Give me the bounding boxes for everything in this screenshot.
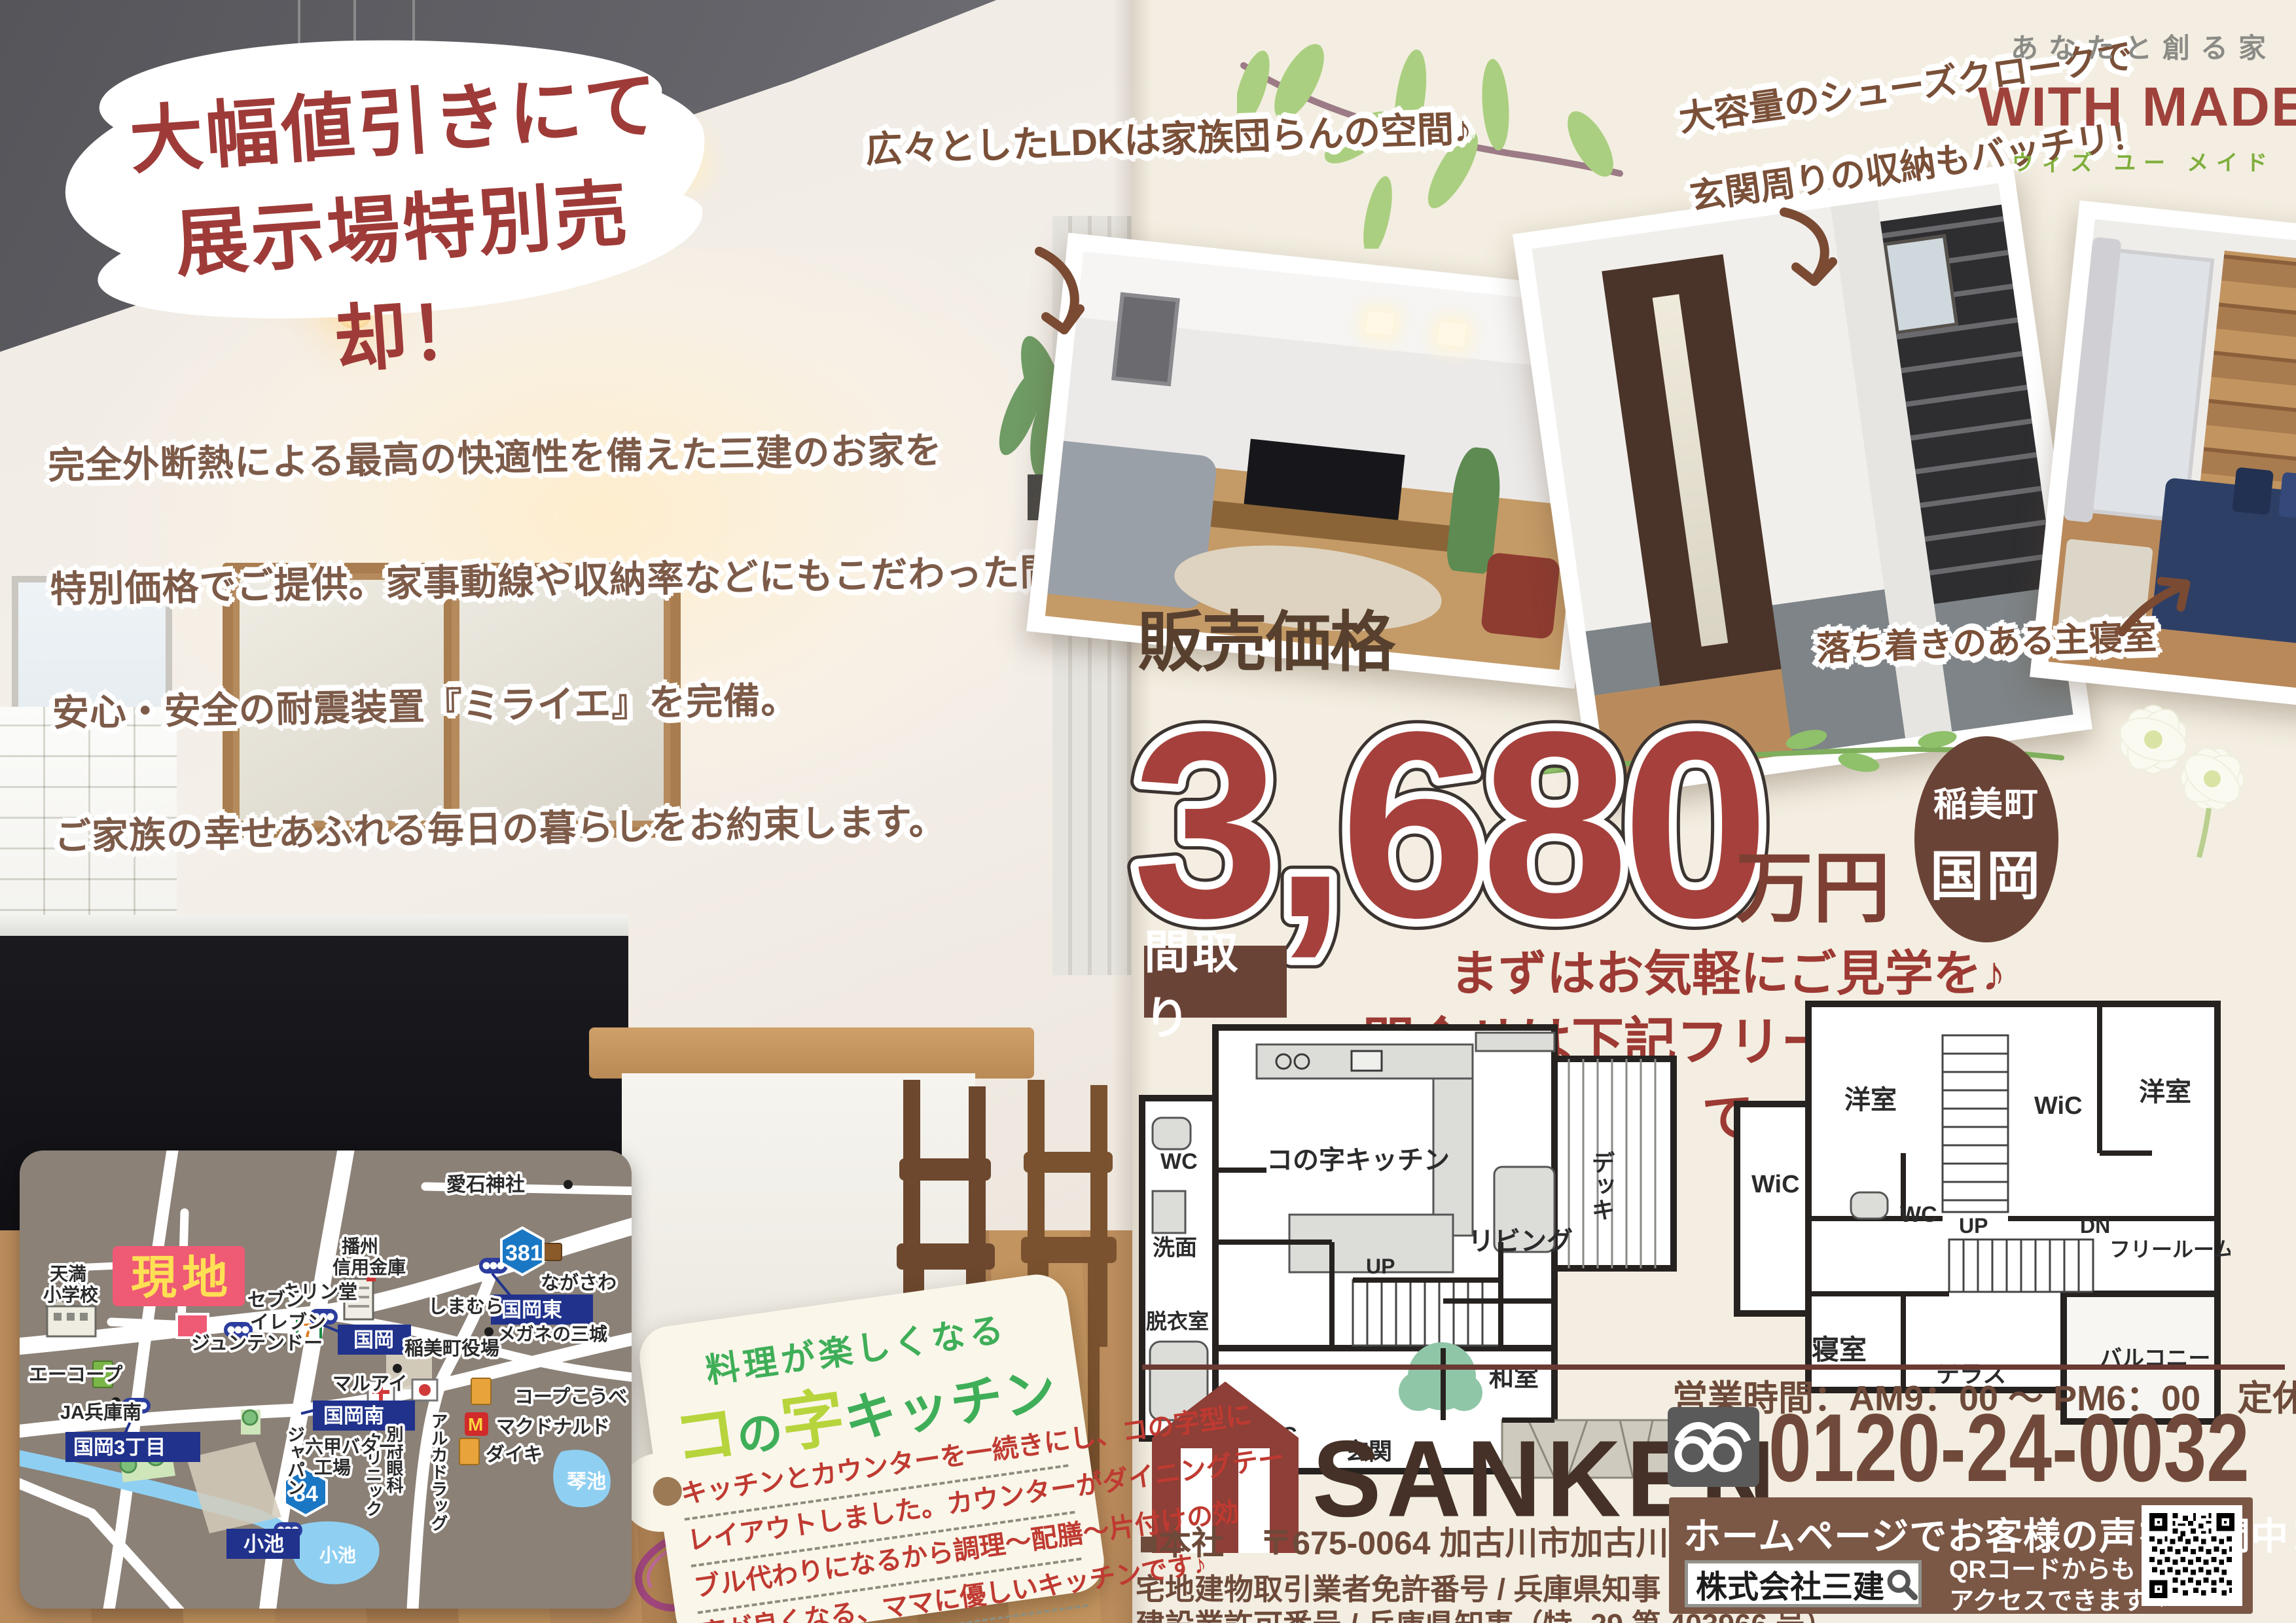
svg-text:ジュンテンドー: ジュンテンドー (191, 1333, 323, 1354)
brand-made: MADE (2142, 75, 2296, 139)
qr-note-line1: QRコードからも (1949, 1555, 2168, 1586)
svg-text:現地: 現地 (131, 1252, 233, 1303)
svg-text:琴池: 琴池 (567, 1471, 606, 1493)
copy-line2: 特別価格でご提供。家事動線や収納率などにもこだわった間取りに (50, 541, 1170, 613)
svg-text:UP: UP (1959, 1214, 1988, 1238)
svg-text:マクドナルド: マクドナルド (496, 1416, 610, 1438)
svg-text:信用金庫: 信用金庫 (332, 1257, 406, 1277)
brand-kana: ウィズ ユー メイド (2003, 145, 2284, 177)
svg-text:ダイキ: ダイキ (486, 1443, 543, 1465)
access-map: 7 M (20, 1150, 632, 1609)
svg-text:愛石神社: 愛石神社 (446, 1174, 525, 1196)
svg-text:国岡東: 国岡東 (501, 1298, 562, 1321)
svg-text:六甲バター: 六甲バター (305, 1436, 397, 1457)
bedroom-arrow-icon (2114, 569, 2193, 641)
svg-text:コープこうべ: コープこうべ (514, 1386, 627, 1408)
svg-text:WiC: WiC (1751, 1171, 1800, 1198)
svg-text:国岡: 国岡 (353, 1329, 394, 1351)
svg-text:稲美町役場: 稲美町役場 (404, 1338, 499, 1359)
freedial-icon (1668, 1407, 1759, 1487)
svg-text:別府眼科: 別府眼科 (384, 1425, 404, 1493)
homepage-banner: ホームページでお客様の声を公開中！ 株式会社三建 QRコードからも アクセスでき… (1669, 1497, 2253, 1614)
copy-block: 完全外断熱による最高の快適性を備えた三建のお家を 特別価格でご提供。家事動線や収… (47, 417, 1174, 861)
island-counter-top (589, 1027, 1034, 1079)
svg-text:小池: 小池 (243, 1533, 284, 1556)
svg-text:国岡南: 国岡南 (323, 1404, 384, 1427)
ldk-chair (1480, 552, 1561, 639)
svg-text:エーコープ: エーコープ (29, 1364, 123, 1385)
svg-text:イレブン: イレブン (250, 1311, 326, 1333)
svg-text:セブン: セブン (247, 1289, 304, 1311)
search-value: 株式会社三建 (1688, 1561, 1884, 1607)
badge-town: 稲美町 (1914, 777, 2058, 826)
svg-text:ジャパン: ジャパン (285, 1425, 304, 1496)
svg-text:リビング: リビング (1468, 1227, 1573, 1256)
white-flower-decoration (2081, 681, 2278, 864)
svg-text:フリールーム: フリールーム (2109, 1238, 2231, 1261)
svg-text:WiC: WiC (2034, 1092, 2083, 1120)
svg-text:WC: WC (1160, 1149, 1198, 1174)
cta-line1: まずはお気軽にご見学を♪ (1414, 935, 2042, 1005)
banner-text: 大幅値引きにて 展示場特別売却！ (98, 50, 708, 410)
svg-text:WC: WC (1900, 1202, 1937, 1227)
ldk-arrow-icon (1026, 243, 1098, 342)
svg-text:UP: UP (1366, 1255, 1395, 1278)
svg-text:しまむら: しまむら (428, 1296, 504, 1317)
banner-line2: 展示場特別売却！ (105, 156, 707, 410)
svg-text:コの字キッチン: コの字キッチン (1266, 1146, 1450, 1175)
svg-text:工場: 工場 (314, 1457, 351, 1478)
badge-district: 国岡 (1914, 832, 2058, 910)
svg-text:国岡3丁目: 国岡3丁目 (73, 1436, 166, 1459)
brand-logo: あなたと創る家 WITH MADE ウィズ ユー メイド (2003, 26, 2284, 177)
svg-text:洋室: 洋室 (2139, 1078, 2191, 1107)
qr-code (2142, 1505, 2242, 1606)
svg-text:381: 381 (505, 1241, 543, 1266)
svg-text:DN: DN (2080, 1214, 2110, 1238)
map-drugstore-icon (412, 1380, 437, 1400)
location-badge: 稲美町 国岡 (1914, 736, 2058, 942)
svg-text:洗面: 洗面 (1153, 1236, 1197, 1260)
map-mcdonalds-icon: M (465, 1412, 488, 1436)
svg-text:デッキ: デッキ (1588, 1150, 1615, 1221)
discount-banner: 大幅値引きにて 展示場特別売却！ (56, 16, 736, 349)
svg-text:洋室: 洋室 (1844, 1086, 1897, 1115)
svg-text:播州: 播州 (342, 1236, 378, 1257)
brand-tagline: あなたと創る家 (2003, 26, 2284, 66)
search-icon[interactable] (1884, 1565, 1918, 1602)
brand-with: WITH (1978, 75, 2124, 139)
flyer-poster: 大幅値引きにて 展示場特別売却！ 完全外断熱による最高の快適性を備えた三建のお家… (0, 0, 2296, 1623)
search-input[interactable]: 株式会社三建 (1685, 1560, 1922, 1607)
entrance-door (1602, 255, 1781, 686)
svg-text:アルカドラッグ: アルカドラッグ (429, 1412, 448, 1531)
qr-note: QRコードからも アクセスできます⇒ (1949, 1555, 2168, 1617)
shoes-arrow-icon (1775, 203, 1847, 294)
svg-text:脱衣室: 脱衣室 (1146, 1310, 1209, 1333)
ldk-window (1111, 293, 1180, 387)
floorplan-label: 間取り (1144, 946, 1287, 1018)
svg-text:天満: 天満 (50, 1264, 86, 1284)
svg-text:小学校: 小学校 (43, 1284, 99, 1305)
kitchen-tag: 料理が楽しくなる コの字キッチン キッチンとカウンターを一続きにし、コの字型に … (636, 1270, 1108, 1623)
svg-text:JA兵庫南: JA兵庫南 (60, 1402, 141, 1423)
price-unit: 万円 (1736, 846, 1890, 932)
copy-line3: 安心・安全の耐震装置『ミライエ』を完備。 (52, 664, 1172, 737)
svg-text:ながさわ: ながさわ (541, 1272, 617, 1294)
phone-number: 0120-24-0032 (1768, 1393, 2286, 1504)
svg-text:小池: 小池 (319, 1545, 356, 1565)
qr-note-line2: アクセスできます⇒ (1949, 1586, 2168, 1618)
svg-text:マルアイ: マルアイ (332, 1374, 408, 1395)
svg-text:寝室: 寝室 (1812, 1334, 1867, 1365)
svg-text:M: M (468, 1414, 483, 1435)
svg-text:メガネの三城: メガネの三城 (497, 1324, 607, 1344)
entrance-window (1883, 234, 1958, 334)
